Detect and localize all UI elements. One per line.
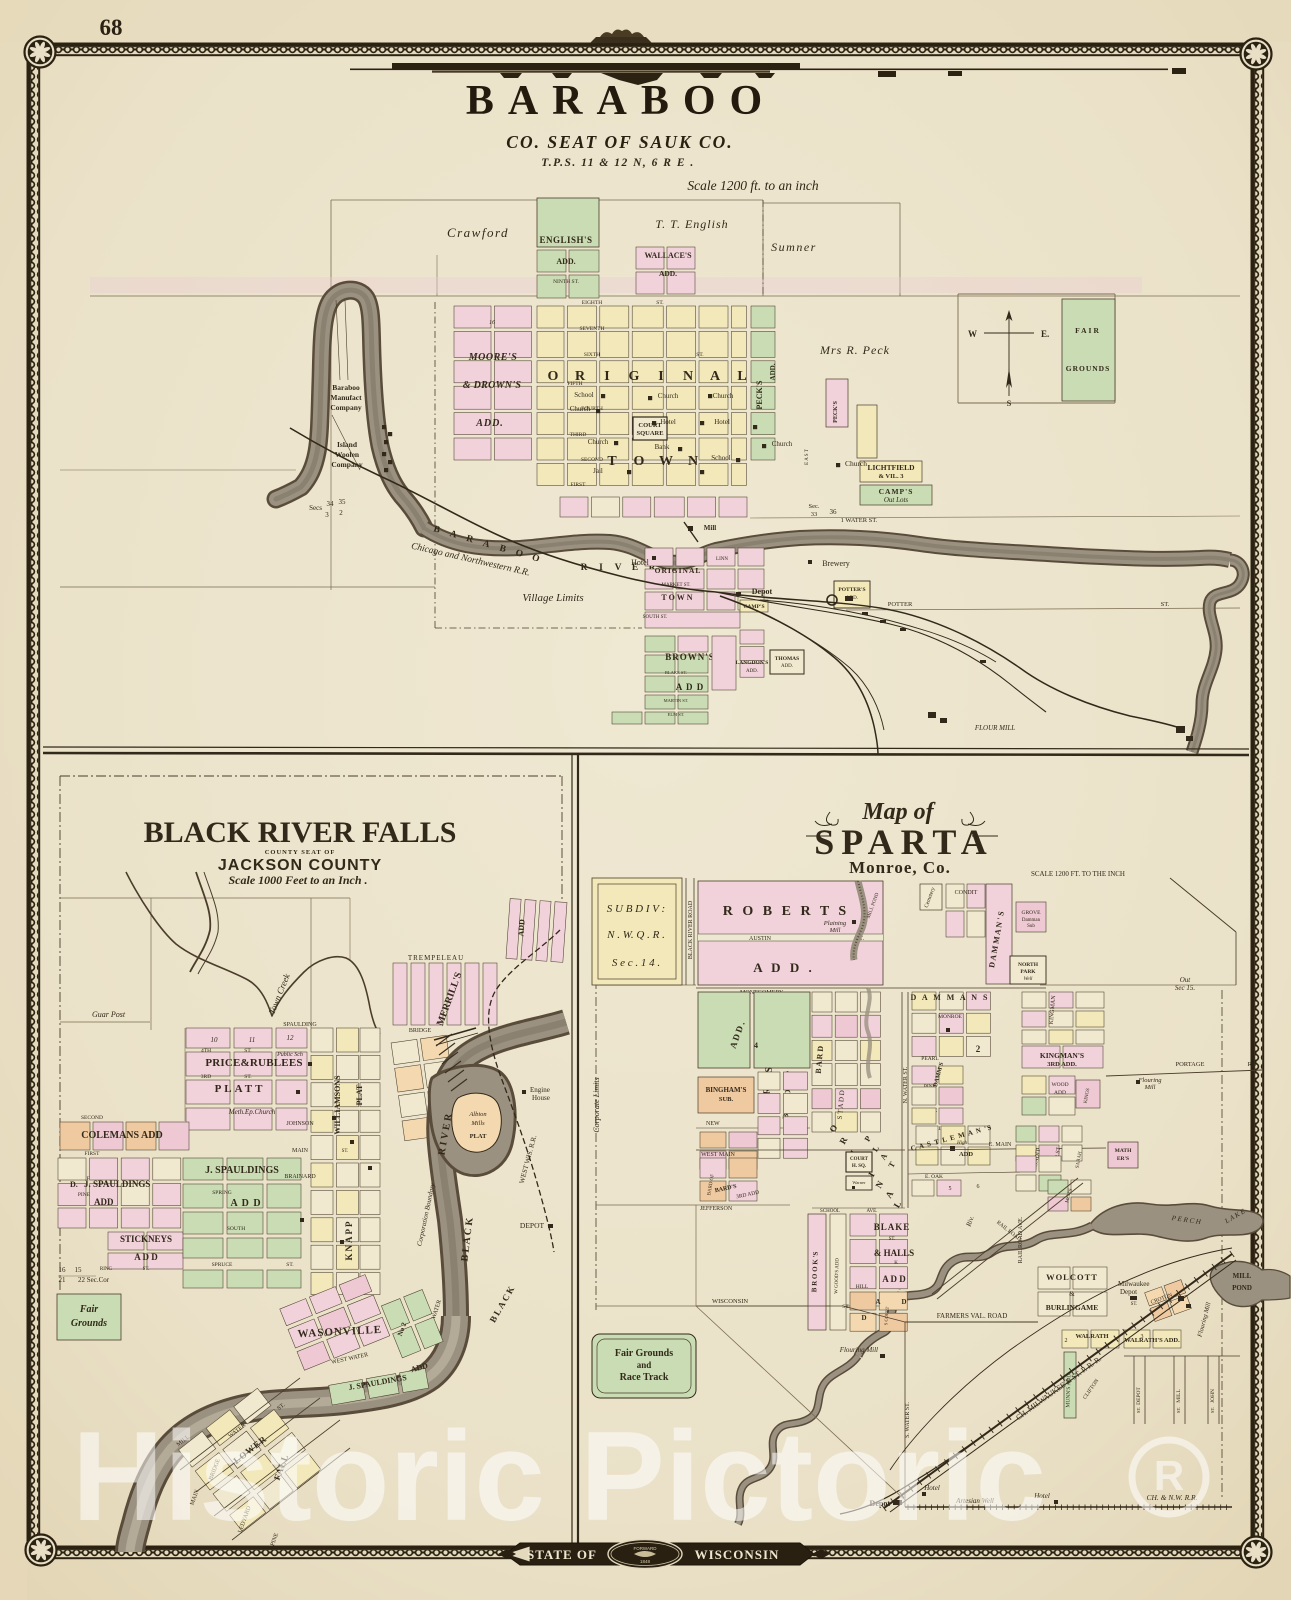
svg-text:3: 3 (325, 511, 329, 519)
svg-text:Woolen: Woolen (335, 450, 360, 459)
svg-text:WOOD: WOOD (1051, 1082, 1068, 1088)
svg-text:MILL: MILL (1176, 1389, 1182, 1403)
svg-text:Sub: Sub (1027, 924, 1035, 929)
svg-text:D A M M A N S: D A M M A N S (911, 993, 990, 1002)
svg-text:35: 35 (339, 498, 347, 506)
svg-text:4: 4 (754, 1041, 758, 1050)
svg-text:ST.: ST. (1210, 1407, 1215, 1413)
svg-text:EIGHTH: EIGHTH (582, 300, 602, 306)
svg-text:MARTIN ST.: MARTIN ST. (664, 698, 689, 703)
svg-text:T: T (607, 454, 617, 469)
svg-text:ELM ST.: ELM ST. (668, 712, 685, 717)
svg-text:MAIN: MAIN (292, 1148, 309, 1154)
svg-text:ST.: ST. (656, 300, 664, 306)
svg-text:GROUNDS: GROUNDS (1066, 364, 1111, 373)
svg-text:ADD.: ADD. (781, 664, 793, 669)
svg-text:Secs: Secs (309, 504, 322, 512)
svg-text:N: N (688, 454, 698, 469)
svg-text:WILLIAMSONS: WILLIAMSONS (333, 1075, 342, 1135)
svg-text:CAMP'S: CAMP'S (879, 487, 914, 496)
svg-text:SPRING: SPRING (212, 1190, 232, 1196)
svg-text:Race Track: Race Track (620, 1372, 669, 1383)
svg-text:COUNTY SEAT OF: COUNTY SEAT OF (265, 849, 336, 856)
svg-text:PRICE&RUBLEES: PRICE&RUBLEES (205, 1057, 302, 1069)
svg-text:Crawford: Crawford (447, 225, 509, 240)
svg-text:4TH: 4TH (201, 1048, 211, 1054)
svg-text:1848: 1848 (640, 1559, 651, 1564)
svg-text:School: School (574, 391, 594, 399)
svg-text:COURT: COURT (638, 422, 662, 429)
svg-text:KINGMAN'S: KINGMAN'S (1040, 1051, 1084, 1060)
svg-text:and: and (637, 1360, 652, 1370)
svg-text:E. MAIN: E. MAIN (989, 1142, 1012, 1148)
svg-text:Flouring Mill: Flouring Mill (839, 1346, 878, 1354)
svg-text:SEVENTH: SEVENTH (579, 326, 604, 332)
svg-text:12: 12 (287, 1034, 295, 1042)
svg-text:ST.: ST. (342, 1149, 349, 1154)
svg-text:ORIGINAL: ORIGINAL (655, 566, 702, 575)
svg-text:Historic Pictoric: Historic Pictoric (72, 1405, 1046, 1547)
svg-text:BARABOO: BARABOO (466, 78, 776, 124)
svg-text:N. WATER ST.: N. WATER ST. (903, 1066, 909, 1103)
svg-text:BLACK RIVER ROAD: BLACK RIVER ROAD (688, 900, 694, 959)
svg-text:CONDIT: CONDIT (955, 890, 978, 896)
svg-text:Mill: Mill (704, 524, 716, 532)
svg-text:E.: E. (1041, 329, 1049, 339)
svg-text:HILL: HILL (856, 1284, 869, 1290)
svg-text:Hotel: Hotel (631, 558, 650, 567)
svg-text:BLAKE ST.: BLAKE ST. (665, 670, 687, 675)
svg-text:Hotel: Hotel (714, 418, 730, 426)
svg-text:Milwaukee: Milwaukee (1118, 1280, 1150, 1288)
svg-text:ADD.: ADD. (746, 669, 758, 674)
svg-text:BRIDGE: BRIDGE (409, 1028, 432, 1034)
svg-text:D.: D. (70, 1180, 78, 1189)
svg-text:BRAINARD: BRAINARD (284, 1174, 316, 1180)
svg-text:Sec.: Sec. (808, 503, 819, 510)
svg-text:MATH: MATH (1115, 1148, 1132, 1154)
svg-text:Church: Church (845, 459, 867, 468)
svg-text:A D D .: A D D . (753, 960, 814, 975)
svg-text:ADD: ADD (959, 1151, 973, 1158)
svg-text:ST.: ST. (1176, 1407, 1181, 1413)
svg-text:11: 11 (249, 1036, 255, 1044)
svg-text:CO. SEAT OF SAUK CO.: CO. SEAT OF SAUK CO. (506, 132, 733, 152)
svg-text:KNAPP: KNAPP (344, 1220, 354, 1261)
svg-text:22 Sec.Cor: 22 Sec.Cor (78, 1276, 110, 1284)
svg-text:& DROWN'S: & DROWN'S (463, 380, 522, 391)
svg-text:JOHN: JOHN (1210, 1389, 1216, 1403)
svg-text:POTTER'S: POTTER'S (838, 587, 865, 593)
svg-text:R O B E R T S: R O B E R T S (723, 904, 849, 919)
svg-text:SQUARE: SQUARE (636, 430, 663, 437)
svg-text:Engine: Engine (530, 1086, 550, 1094)
svg-text:JACKSON COUNTY: JACKSON COUNTY (218, 857, 382, 874)
svg-text:J. SPAULDINGS: J. SPAULDINGS (84, 1179, 150, 1189)
svg-text:36: 36 (830, 508, 838, 516)
svg-text:Meth.Ep.Church: Meth.Ep.Church (228, 1108, 276, 1116)
svg-text:Fair Grounds: Fair Grounds (615, 1348, 673, 1359)
svg-text:3RD: 3RD (201, 1074, 211, 1080)
svg-text:Island: Island (337, 440, 358, 449)
svg-text:FIFTH: FIFTH (567, 381, 582, 387)
svg-text:Guar Post: Guar Post (92, 1010, 126, 1019)
svg-text:SECOND: SECOND (81, 1115, 103, 1121)
svg-text:N: N (683, 369, 693, 384)
svg-text:Hotel: Hotel (660, 418, 676, 426)
svg-text:Fair: Fair (79, 1304, 98, 1315)
svg-text:S: S (1007, 399, 1012, 408)
svg-text:ADD: ADD (94, 1197, 114, 1207)
svg-text:PLAT: PLAT (355, 1084, 364, 1105)
svg-text:ST.: ST. (286, 1262, 294, 1268)
svg-text:Sec 15.: Sec 15. (1175, 984, 1195, 992)
svg-text:Scale 1200 ft. to an inch: Scale 1200 ft. to an inch (687, 178, 818, 193)
svg-text:G: G (629, 369, 640, 384)
svg-text:Damman: Damman (1022, 918, 1041, 923)
svg-text:WALRATH: WALRATH (1075, 1333, 1108, 1340)
svg-text:16: 16 (489, 320, 495, 326)
svg-text:Albion: Albion (468, 1111, 486, 1118)
svg-text:MONROE: MONROE (938, 1014, 962, 1020)
svg-text:R: R (1154, 1452, 1184, 1499)
svg-text:FLOUR MILL: FLOUR MILL (974, 724, 1015, 732)
svg-text:A D D: A D D (882, 1274, 906, 1284)
svg-text:MILL: MILL (1233, 1272, 1252, 1280)
svg-text:A: A (710, 369, 721, 384)
svg-text:PLAT: PLAT (470, 1133, 488, 1140)
svg-text:GROVE: GROVE (1022, 910, 1042, 916)
svg-text:J. SPAULDINGS: J. SPAULDINGS (205, 1165, 279, 1176)
svg-text:THIRD: THIRD (570, 432, 587, 438)
svg-text:34: 34 (327, 500, 335, 508)
svg-text:33: 33 (811, 511, 818, 518)
svg-text:SIXTH: SIXTH (584, 352, 600, 358)
svg-text:Corporate Limits: Corporate Limits (592, 1077, 601, 1132)
svg-text:ADD.: ADD. (556, 257, 575, 266)
svg-text:Depot: Depot (1120, 1288, 1137, 1296)
svg-text:Mill: Mill (829, 927, 841, 934)
svg-text:A D D: A D D (230, 1198, 261, 1209)
svg-text:Scale 1000 Feet to an Inch .: Scale 1000 Feet to an Inch . (228, 873, 367, 887)
svg-text:K: K (894, 1261, 898, 1266)
svg-text:& HALLS: & HALLS (874, 1248, 914, 1258)
svg-text:ST.: ST. (1136, 1407, 1141, 1413)
svg-text:PECK'S: PECK'S (755, 380, 764, 409)
svg-text:DEPOT: DEPOT (520, 1221, 545, 1230)
svg-text:FIRST: FIRST (571, 482, 587, 488)
svg-text:SPARTA: SPARTA (814, 822, 993, 862)
svg-text:1 WATER ST.: 1 WATER ST. (841, 517, 878, 524)
svg-text:&: & (1069, 1290, 1075, 1298)
svg-text:Public Sch: Public Sch (276, 1052, 303, 1058)
svg-text:3RD ADD.: 3RD ADD. (1047, 1061, 1077, 1068)
svg-text:D: D (861, 1314, 866, 1322)
svg-text:16: 16 (59, 1266, 67, 1274)
svg-text:Out Lots: Out Lots (884, 496, 909, 504)
svg-text:Jail: Jail (593, 467, 603, 475)
svg-text:B R O O K 'S: B R O O K 'S (810, 1251, 819, 1292)
svg-text:LICHTFIELD: LICHTFIELD (867, 463, 915, 472)
svg-text:ST.: ST. (244, 1048, 252, 1054)
svg-text:V: V (615, 563, 622, 573)
svg-text:Well: Well (1024, 977, 1033, 982)
svg-text:BROWN'S: BROWN'S (665, 652, 715, 662)
svg-text:Warner: Warner (852, 1180, 866, 1185)
svg-text:SPRUCE: SPRUCE (212, 1262, 233, 1268)
svg-text:BLAKE: BLAKE (874, 1222, 911, 1232)
svg-text:Church: Church (658, 392, 679, 400)
svg-text:ADD: ADD (516, 919, 526, 937)
svg-text:Flouring: Flouring (1137, 1077, 1162, 1084)
svg-text:ST.: ST. (889, 1237, 896, 1242)
svg-text:PEARL: PEARL (921, 1056, 939, 1062)
svg-text:E A S T: E A S T (805, 449, 810, 465)
svg-text:2: 2 (1065, 1338, 1068, 1344)
svg-text:10: 10 (211, 1036, 219, 1044)
svg-text:FIRST: FIRST (85, 1151, 101, 1157)
svg-text:SOUTH ST.: SOUTH ST. (643, 615, 668, 620)
svg-text:High: High (956, 1141, 968, 1146)
svg-text:O: O (634, 454, 645, 469)
svg-text:L: L (737, 369, 746, 384)
svg-text:& VIL. 3: & VIL. 3 (879, 473, 905, 480)
svg-text:ADD.: ADD. (769, 363, 777, 380)
svg-text:S e c . 1 4 .: S e c . 1 4 . (612, 957, 660, 969)
svg-text:5: 5 (949, 1186, 952, 1192)
svg-text:Mill: Mill (1144, 1084, 1156, 1091)
svg-text:WISCONSIN: WISCONSIN (712, 1298, 748, 1305)
svg-text:COURT: COURT (850, 1157, 869, 1162)
svg-text:SPAULDING: SPAULDING (283, 1022, 317, 1028)
svg-text:E. OAK: E. OAK (925, 1174, 943, 1180)
svg-text:ADD.: ADD. (659, 269, 677, 278)
svg-text:Sumner: Sumner (771, 240, 817, 254)
svg-text:BLACK RIVER FALLS: BLACK RIVER FALLS (144, 816, 457, 849)
svg-text:H. SQ.: H. SQ. (852, 1164, 867, 1169)
svg-text:FOURTH: FOURTH (581, 406, 603, 412)
svg-text:PORTAGE: PORTAGE (1175, 1061, 1204, 1068)
svg-text:Company: Company (330, 403, 362, 412)
svg-text:SUB.: SUB. (719, 1096, 734, 1103)
svg-text:S U B D I V :: S U B D I V : (607, 903, 665, 915)
svg-text:STATE OF: STATE OF (527, 1547, 597, 1562)
svg-text:PARK: PARK (1020, 969, 1036, 975)
svg-text:T. T. English: T. T. English (655, 217, 728, 231)
svg-text:SECOND: SECOND (581, 457, 603, 463)
svg-text:21: 21 (59, 1276, 67, 1284)
svg-text:COLEMANS ADD: COLEMANS ADD (81, 1130, 162, 1141)
svg-text:POND: POND (1232, 1284, 1252, 1292)
svg-text:ADD: ADD (1054, 1090, 1066, 1096)
svg-text:WALLACE'S: WALLACE'S (644, 251, 692, 260)
svg-text:House: House (532, 1094, 550, 1102)
svg-text:Baraboo: Baraboo (332, 383, 360, 392)
svg-text:TREMPELEAU: TREMPELEAU (408, 954, 464, 962)
svg-text:Mills: Mills (470, 1120, 485, 1127)
svg-text:THOMAS: THOMAS (775, 656, 799, 662)
svg-text:Church: Church (713, 392, 734, 400)
svg-text:Manufact: Manufact (330, 393, 362, 402)
svg-text:A: A (875, 1298, 880, 1306)
svg-text:FAIR: FAIR (1075, 326, 1101, 335)
svg-text:RING: RING (100, 1267, 113, 1272)
svg-text:I: I (604, 369, 609, 384)
svg-text:WEST MAIN: WEST MAIN (701, 1152, 735, 1158)
svg-text:PECK'S: PECK'S (833, 401, 839, 423)
svg-text:Plaining: Plaining (823, 920, 847, 927)
svg-text:WOLCOTT: WOLCOTT (1046, 1272, 1098, 1282)
svg-text:6: 6 (977, 1184, 980, 1190)
svg-text:N . W. Q . R .: N . W. Q . R . (606, 929, 665, 941)
svg-text:TOWN: TOWN (661, 593, 694, 602)
svg-text:PINE: PINE (78, 1192, 91, 1198)
svg-text:W: W (968, 329, 977, 339)
svg-text:Monroe, Co.: Monroe, Co. (849, 858, 951, 877)
svg-text:15: 15 (75, 1266, 83, 1274)
svg-text:W: W (659, 454, 673, 469)
svg-text:NORTH: NORTH (1018, 962, 1039, 968)
svg-text:WALRATH'S ADD.: WALRATH'S ADD. (1124, 1337, 1180, 1344)
svg-text:BINGHAM'S: BINGHAM'S (706, 1086, 747, 1094)
svg-text:3: 3 (1141, 1334, 1144, 1340)
svg-text:MOORE'S: MOORE'S (468, 352, 518, 363)
svg-text:Brewery: Brewery (822, 559, 850, 568)
svg-text:NINTH ST.: NINTH ST. (553, 279, 579, 285)
svg-text:I: I (658, 369, 663, 384)
svg-text:A D D: A D D (676, 682, 705, 692)
svg-text:PLATT: PLATT (215, 1083, 266, 1095)
svg-text:AUSTIN: AUSTIN (749, 936, 772, 942)
svg-text:68: 68 (100, 15, 123, 40)
svg-text:WISCONSIN: WISCONSIN (695, 1547, 780, 1562)
svg-text:RD: RD (1247, 1061, 1256, 1068)
svg-text:O: O (548, 369, 559, 384)
svg-text:NEW: NEW (706, 1121, 720, 1127)
svg-text:ST.: ST. (143, 1267, 150, 1272)
svg-text:LINN: LINN (716, 557, 728, 562)
svg-text:Mrs R. Peck: Mrs R. Peck (819, 343, 890, 357)
svg-text:STICKNEYS: STICKNEYS (120, 1234, 172, 1244)
svg-text:AVE.: AVE. (867, 1209, 878, 1214)
svg-text:2: 2 (976, 1044, 981, 1054)
svg-text:ST.: ST. (1131, 1302, 1138, 1307)
svg-text:BURLINGAME: BURLINGAME (1046, 1303, 1099, 1312)
svg-text:ENGLISH'S: ENGLISH'S (539, 235, 592, 245)
svg-text:Depot: Depot (752, 587, 773, 596)
svg-text:D: D (901, 1298, 906, 1306)
svg-text:ER'S: ER'S (1117, 1156, 1129, 1162)
svg-text:Company: Company (331, 460, 363, 469)
svg-text:Out: Out (1180, 976, 1192, 984)
svg-text:Church: Church (772, 440, 793, 448)
svg-text:Village Limits: Village Limits (522, 592, 583, 604)
svg-text:SCHOOL: SCHOOL (820, 1209, 840, 1214)
svg-text:DEPOT: DEPOT (1136, 1387, 1142, 1405)
svg-text:ST.: ST. (244, 1074, 252, 1080)
svg-text:A D D: A D D (134, 1252, 158, 1262)
svg-text:SOUTH: SOUTH (227, 1226, 245, 1232)
svg-text:JOHNSON: JOHNSON (286, 1121, 314, 1127)
svg-text:SCALE 1200 FT. TO THE INCH: SCALE 1200 FT. TO THE INCH (1031, 870, 1125, 878)
svg-text:JEFFERSON: JEFFERSON (700, 1206, 733, 1212)
svg-text:FARMERS VAL. ROAD: FARMERS VAL. ROAD (937, 1312, 1008, 1320)
svg-text:Bank: Bank (655, 443, 670, 451)
svg-text:T.P.S. 11 & 12 N, 6 R E .: T.P.S. 11 & 12 N, 6 R E . (541, 157, 695, 169)
svg-text:2: 2 (339, 509, 343, 517)
svg-text:Church: Church (588, 438, 609, 446)
svg-text:ADD.: ADD. (475, 418, 504, 429)
svg-text:Grounds: Grounds (71, 1318, 107, 1329)
svg-text:POTTER: POTTER (888, 601, 913, 608)
svg-text:ST.: ST. (696, 352, 704, 358)
svg-text:ST.: ST. (1161, 601, 1170, 608)
svg-text:School: School (711, 454, 731, 462)
svg-text:R: R (581, 563, 588, 573)
svg-text:LANGDON'S: LANGDON'S (736, 660, 769, 666)
